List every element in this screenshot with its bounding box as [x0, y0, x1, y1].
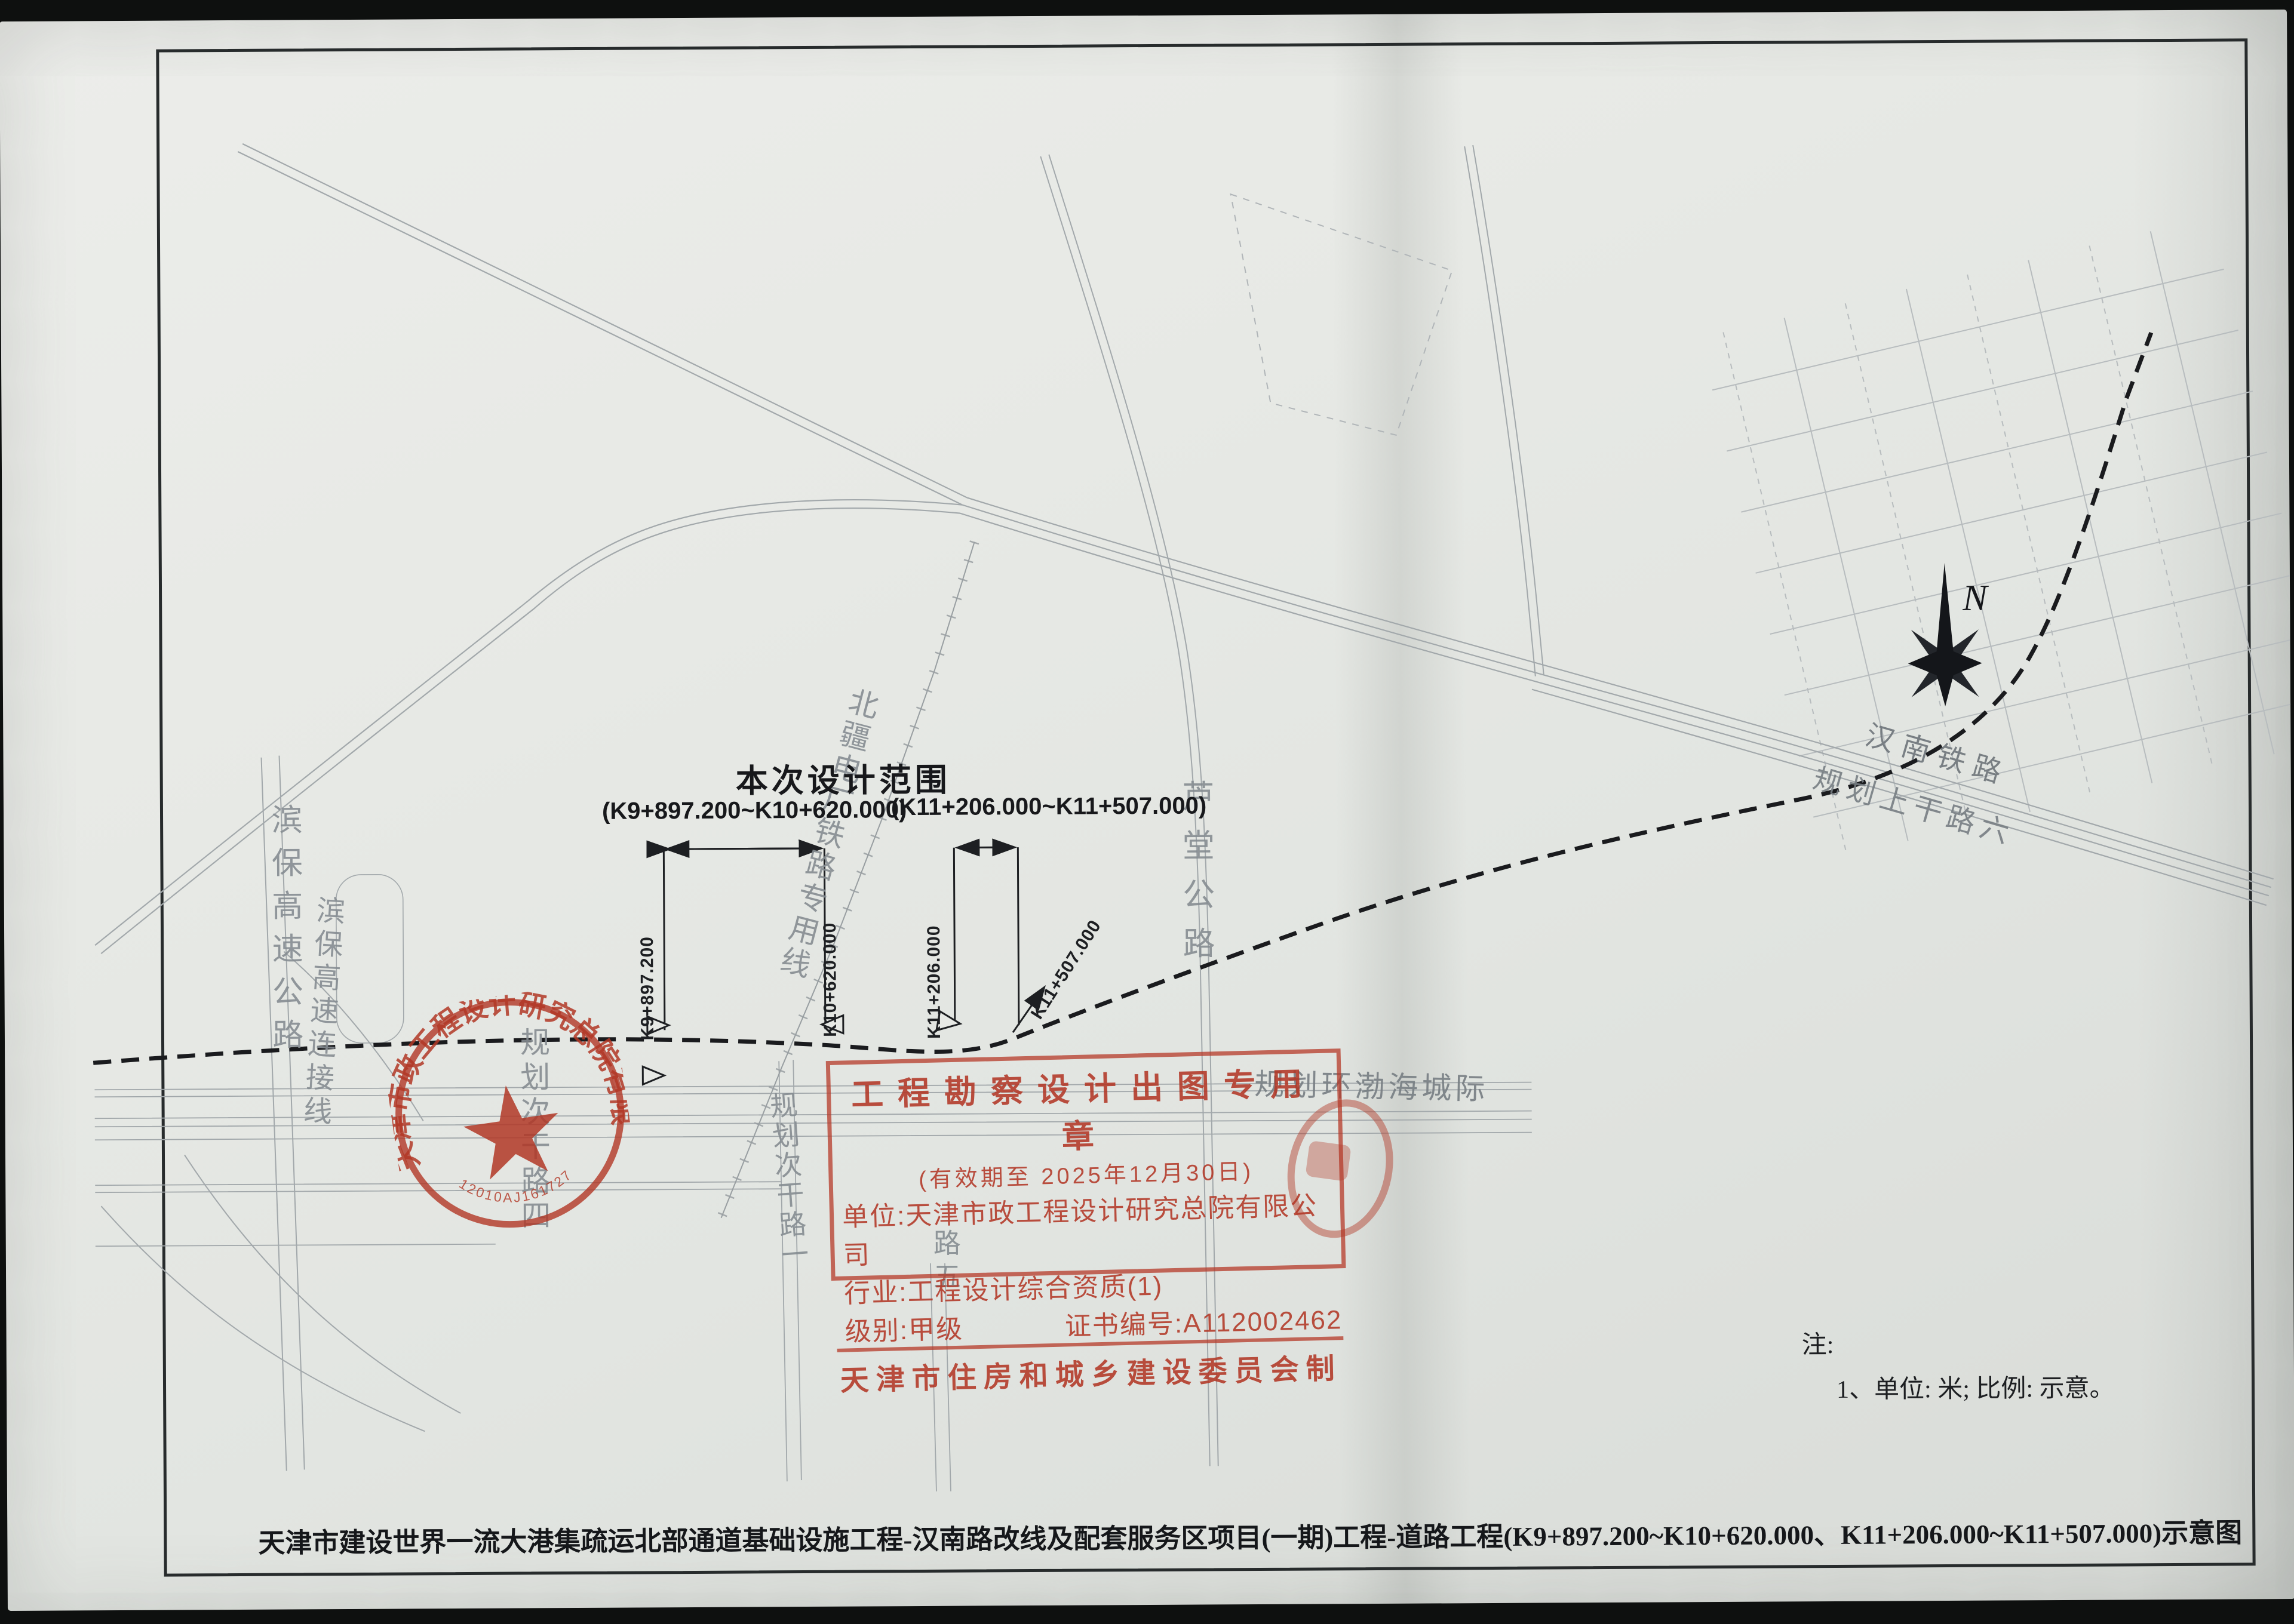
- design-range-1: (K9+897.200~K10+620.000): [602, 796, 907, 825]
- project-alignment-dashed: [90, 333, 2155, 1063]
- notes-heading: 注:: [1802, 1323, 2115, 1361]
- design-range-2: (K11+206.000~K11+507.000): [891, 792, 1206, 821]
- station-label-k10-620: K10+620.000: [820, 922, 841, 1037]
- notes-item-1: 1、单位: 米; 比例: 示意。: [1837, 1368, 2115, 1405]
- stamp-cert-number: 证书编号:A112002462: [1064, 1298, 1343, 1343]
- photo-of-drawing: 滨保高速公路 滨保高速连接线 北疆电厂铁路专用线 芦堂公路 汉南铁路 规划上干路…: [0, 0, 2294, 1624]
- stamp-serial-number: 12010AJ161727: [454, 1160, 578, 1214]
- north-label: N: [1963, 577, 1988, 620]
- parcel-boundary: [1231, 193, 1453, 436]
- overlapping-seal-mark-2: [1305, 1140, 1351, 1182]
- design-range-bracket-2: [954, 847, 1019, 1026]
- stamp-title: 工程勘察设计出图专用章: [830, 1056, 1339, 1163]
- station-label-k11-206: K11+206.000: [924, 925, 945, 1039]
- round-company-stamp: 天津市政工程设计研究总院有限公司 12010AJ161727: [376, 980, 643, 1247]
- stamp-level: 级别:甲级: [844, 1308, 964, 1349]
- station-label-k9-897: K9+897.200: [637, 936, 658, 1040]
- notes-block: 注: 1、单位: 米; 比例: 示意。: [1802, 1323, 2115, 1406]
- stamp-star-icon: [459, 1079, 566, 1183]
- stamp-unit: 单位:天津市政工程设计研究总院有限公司: [833, 1183, 1341, 1272]
- north-arrow-icon: [1877, 562, 2013, 731]
- rect-approval-stamp: 工程勘察设计出图专用章 (有效期至 2025年12月30日) 单位:天津市政工程…: [826, 1048, 1346, 1281]
- svg-text:12010AJ161727: 12010AJ161727: [454, 1160, 578, 1214]
- paper-sheet: 滨保高速公路 滨保高速连接线 北疆电厂铁路专用线 芦堂公路 汉南铁路 规划上干路…: [0, 10, 2294, 1611]
